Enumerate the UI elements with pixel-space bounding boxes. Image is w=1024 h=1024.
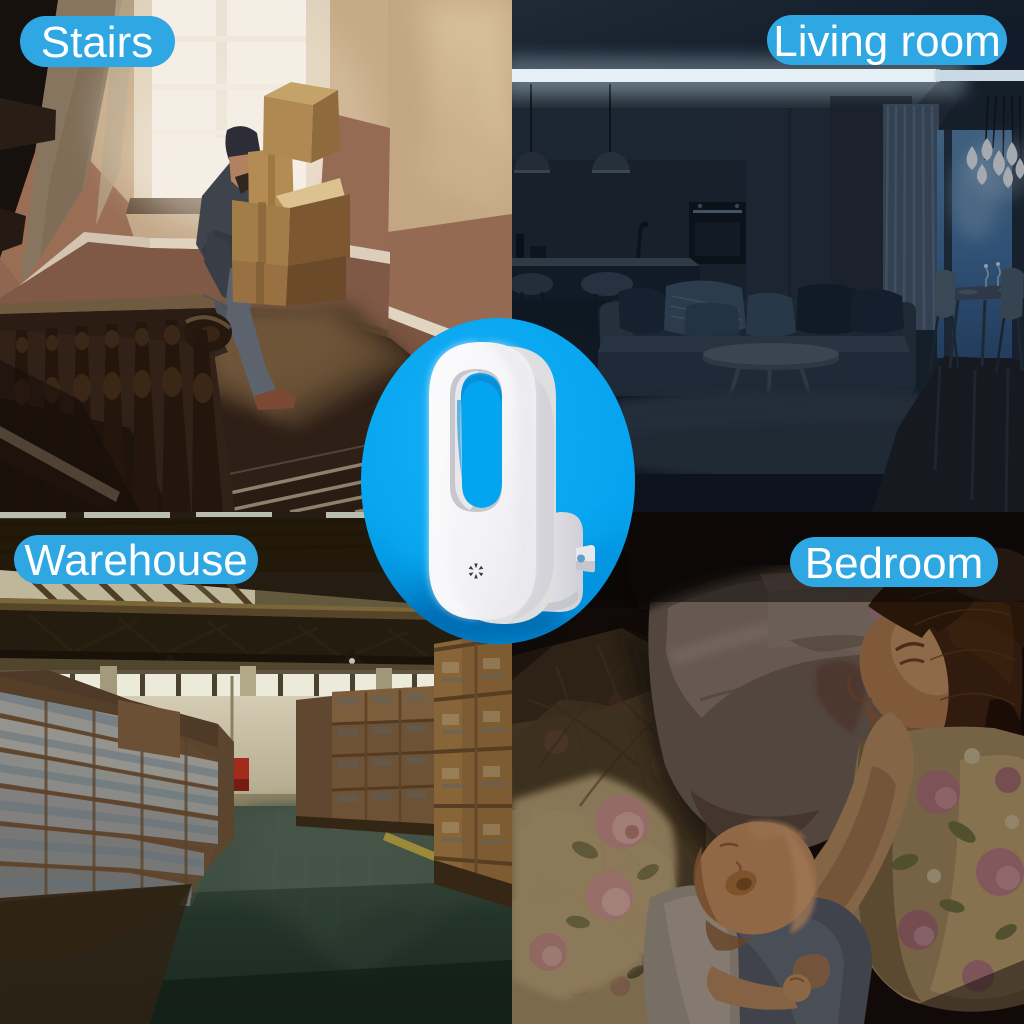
svg-text:Stairs: Stairs [41, 18, 153, 67]
svg-text:Bedroom: Bedroom [805, 539, 984, 588]
svg-text:Warehouse: Warehouse [24, 536, 247, 585]
svg-text:Living room: Living room [773, 17, 1000, 66]
